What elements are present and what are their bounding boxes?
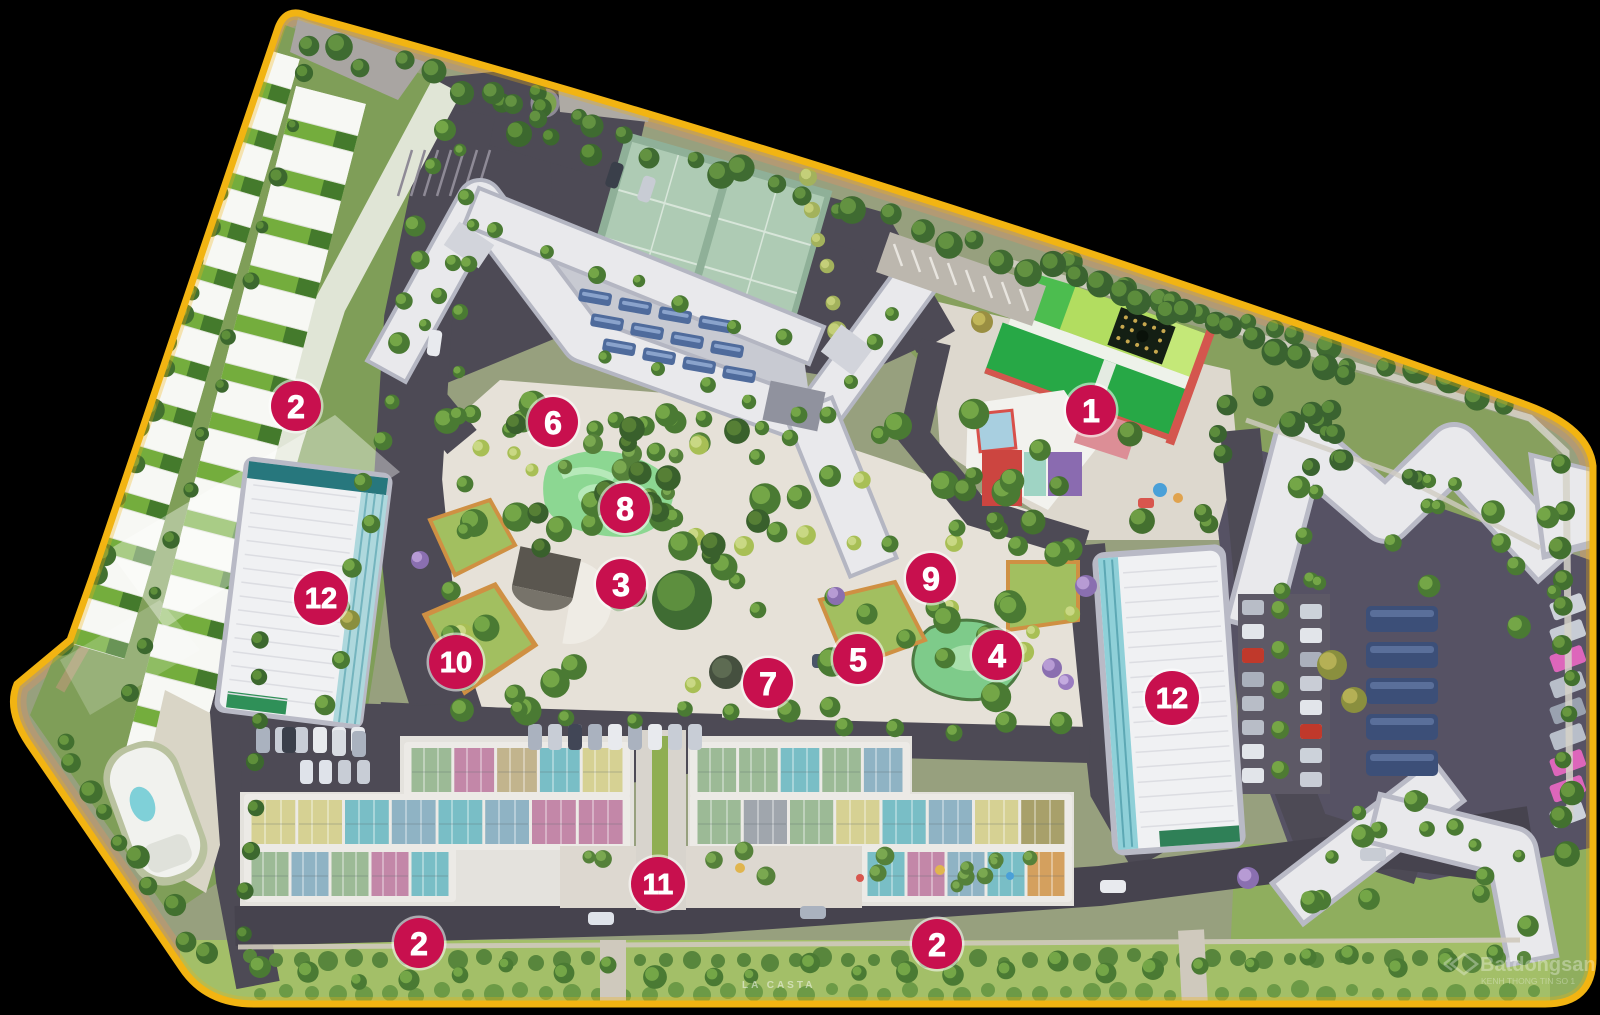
svg-text:9: 9: [922, 561, 940, 597]
svg-text:10: 10: [440, 647, 472, 679]
svg-text:6: 6: [544, 405, 562, 441]
svg-text:5: 5: [849, 642, 867, 678]
svg-text:2: 2: [928, 927, 946, 963]
svg-text:2: 2: [287, 389, 305, 425]
svg-text:8: 8: [616, 491, 634, 527]
svg-text:4: 4: [988, 638, 1006, 674]
svg-text:1: 1: [1082, 393, 1100, 429]
svg-text:7: 7: [759, 666, 777, 702]
svg-text:12: 12: [305, 583, 337, 615]
svg-text:2: 2: [410, 926, 428, 962]
svg-text:KENH THONG TIN SO 1: KENH THONG TIN SO 1: [1481, 976, 1575, 986]
svg-text:12: 12: [1156, 683, 1188, 715]
svg-text:11: 11: [643, 869, 674, 901]
svg-text:Batdongsan: Batdongsan: [1480, 954, 1596, 976]
svg-text:LA CASTA: LA CASTA: [742, 980, 815, 991]
svg-text:3: 3: [612, 567, 630, 603]
